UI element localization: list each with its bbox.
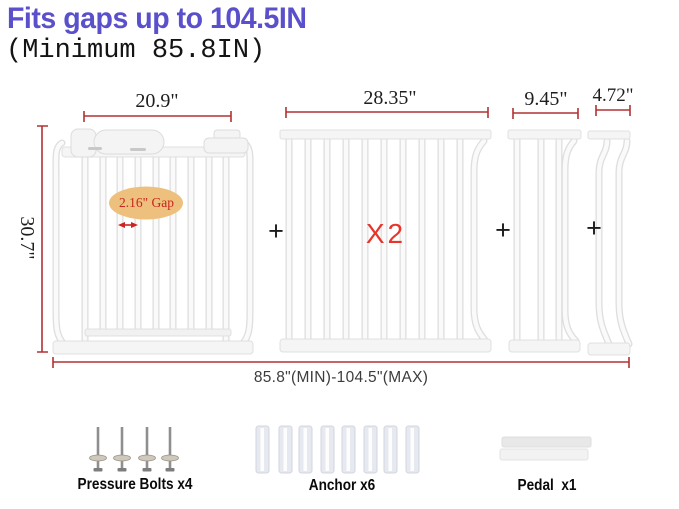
quantity-x2-label: X2 bbox=[346, 218, 426, 250]
plus-sign-3: + bbox=[582, 213, 606, 244]
dimension-gate-height: 30.7" bbox=[16, 208, 38, 268]
pedal-label: Pedal x1 bbox=[496, 477, 598, 495]
pressure-bolts-label: Pressure Bolts x4 bbox=[67, 476, 203, 494]
pressure-bolts-graphic bbox=[90, 427, 179, 472]
plus-sign-2: + bbox=[491, 215, 515, 246]
pedal-graphic bbox=[500, 437, 591, 460]
plus-sign-1: + bbox=[264, 216, 288, 247]
dimension-extension-wide-width: 28.35" bbox=[340, 87, 440, 110]
dimension-main-gate-width: 20.9" bbox=[107, 90, 207, 113]
gate-bars bbox=[56, 139, 629, 344]
dimension-total-range: 85.8"(MIN)-104.5"(MAX) bbox=[191, 369, 491, 387]
dimension-extension-medium-width: 9.45" bbox=[506, 88, 586, 111]
anchor-label: Anchor x6 bbox=[291, 477, 393, 495]
gap-callout-label: 2.16" Gap bbox=[104, 195, 189, 211]
dimension-extension-small-width: 4.72" bbox=[578, 85, 648, 107]
product-diagram: Fits gaps up to 104.5IN (Minimum 85.8IN) bbox=[0, 0, 679, 509]
anchors-graphic bbox=[256, 426, 419, 473]
gate-illustration bbox=[0, 0, 679, 509]
